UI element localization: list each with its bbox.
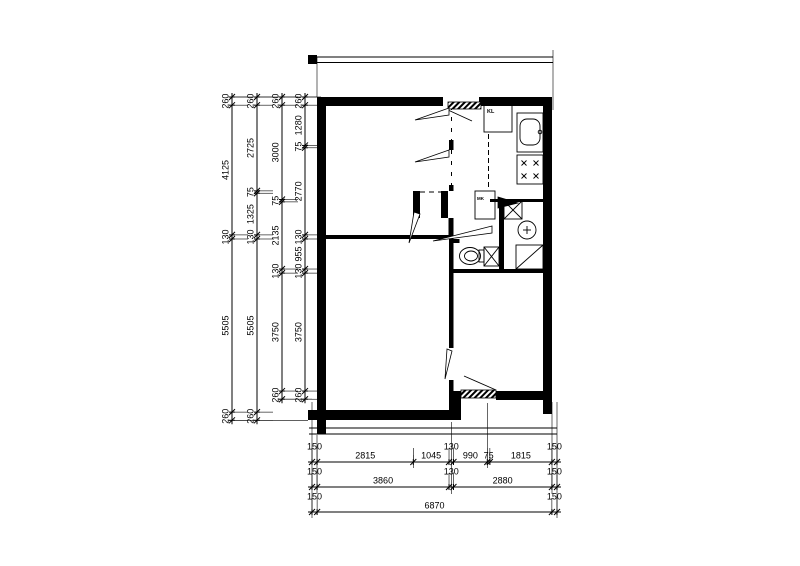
dim-label: 2135 [271,225,281,245]
wall-right [543,97,552,414]
dimension-chains: 2604125130550526026027257513251305505260… [221,93,562,515]
balcony-door-swing [464,376,496,390]
dim-label: 2815 [355,451,375,461]
dim-label: 4125 [221,160,231,180]
wall-bottom-right [496,391,552,400]
walls [308,97,552,434]
balcony-edges [308,50,557,434]
dim-label: 150 [307,492,322,502]
balcony-top-pier [308,55,317,64]
dim-label: 1815 [511,451,531,461]
stove-burner-icons [522,161,539,179]
wall-bottom-left [308,410,460,420]
wall-interior-vertical-upper [449,239,454,348]
dim-label: 130 [294,229,304,244]
dim-chain-left-2: 26027257513251305505260 [246,93,274,424]
dim-label: 260 [294,94,304,109]
dim-label: 260 [246,94,256,109]
bedroom-door-leaf [445,349,452,379]
dim-label: 2725 [246,138,256,158]
dim-label: 260 [221,409,231,424]
wall-bathroom-left [499,202,504,269]
dim-chain-bottom-3: 1506870150 [307,492,562,516]
wall-hall-stub-1 [449,140,454,150]
wall-niche-right [441,191,448,218]
kitchen-sink-bowl [520,119,540,145]
dim-label: 75 [294,142,304,152]
wall-top-right [479,97,552,106]
dim-label: 130 [221,229,231,244]
hall-living-door-leaf-2 [415,150,449,162]
dim-label: 260 [246,409,256,424]
wall-hall-stub-2 [449,185,454,191]
dim-label: 2770 [294,181,304,201]
dim-label: 75 [271,196,281,206]
toilet-bowl-inner [465,251,478,261]
dim-label: 130 [246,229,256,244]
entrance-door-leaf [448,102,481,109]
dim-label: 130 [444,442,459,452]
shower-diagonal [516,245,543,269]
dim-label: 3750 [271,322,281,342]
dim-label: 130 [294,264,304,279]
drawing-canvas: KL MK [0,0,800,566]
wall-top-left [317,97,443,106]
dim-label: 1280 [294,115,304,135]
dim-label: 260 [294,388,304,403]
dim-label: 990 [463,451,478,461]
dim-label: 150 [307,467,322,477]
wall-toilet-bottom [449,269,543,273]
dim-label: 150 [307,442,322,452]
dim-label: 260 [271,388,281,403]
dashed-partitions [420,106,489,192]
dim-label: 75 [246,187,256,197]
floor-plan-svg: KL MK [0,0,800,566]
dim-label: 150 [547,442,562,452]
dim-label: 3750 [294,322,304,342]
toilet-cistern [479,250,484,262]
dim-label: 260 [221,94,231,109]
dim-label: 75 [484,451,494,461]
dim-chain-bottom-2: 15038601302880150 [307,467,562,491]
balcony-door-leaf [461,390,496,398]
wall-toilet-top-stub [454,239,460,243]
hall-living-door-leaf-1 [415,108,449,120]
dim-chain-left-1: 26041251305505260 [221,93,249,424]
dim-label: 150 [547,492,562,502]
meter-cupboard-door-leaf [498,197,518,208]
closet-label: KL [487,109,495,115]
dim-chain-left-4: 26012807527701309551303750260 [294,93,322,403]
dim-label: 130 [444,467,459,477]
dim-label: 5505 [221,316,231,336]
wall-interior-vertical-lower [449,380,454,410]
hall-toilet-door-leaf [433,226,492,241]
dim-label: 150 [547,467,562,477]
dim-label: 1325 [246,204,256,224]
meter-cupboard-label: MK [477,196,485,201]
dim-chain-bottom-1: 15028151045130990751815150 [307,442,562,466]
dim-label: 2880 [493,476,513,486]
dim-label: 955 [294,246,304,261]
dim-label: 3860 [373,476,393,486]
dim-label: 1045 [421,451,441,461]
wall-divider-horizontal [317,235,453,239]
dim-label: 260 [271,94,281,109]
dim-label: 3000 [271,142,281,162]
stove-box [517,155,543,184]
dim-label: 5505 [246,316,256,336]
dim-label: 6870 [424,501,444,511]
dim-label: 130 [271,264,281,279]
